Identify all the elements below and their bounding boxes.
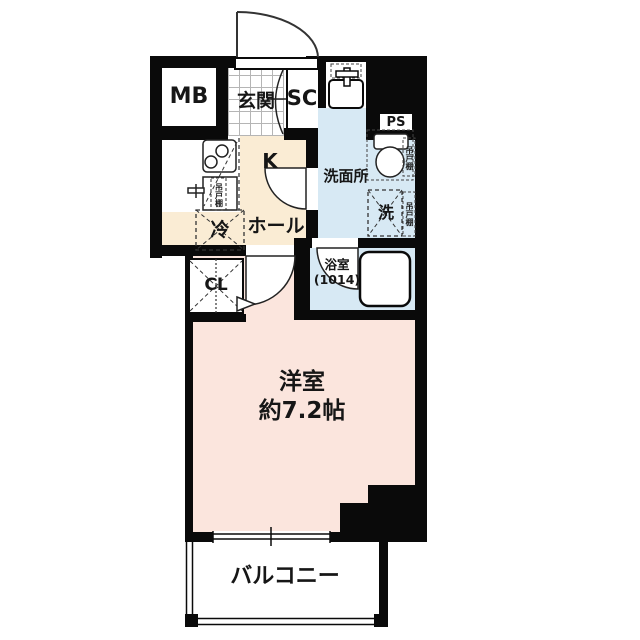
label-pipe-space: PS <box>380 114 412 130</box>
label-kitchen: K <box>252 148 288 174</box>
label-fridge: 冷 <box>206 216 234 244</box>
label-closet: CL <box>198 272 234 298</box>
label-balcony: バルコニー <box>228 563 342 591</box>
label-washroom: 洗面所 <box>314 166 378 186</box>
plan-linework <box>0 0 640 640</box>
label-washer: 洗 <box>374 202 398 224</box>
label-bathroom-size: (1014) <box>312 273 362 288</box>
label-cupboard-washer: 吊戸棚 <box>403 194 415 234</box>
label-shoe-closet: SC <box>286 84 318 112</box>
label-bathroom-name: 浴室 <box>314 258 360 273</box>
label-main-room-size: 約7.2帖 <box>252 397 352 425</box>
label-main-room-name: 洋室 <box>265 368 339 396</box>
label-meter-box: MB <box>162 82 216 112</box>
label-cupboard-kitchen: 吊戸棚 <box>211 180 226 209</box>
label-cupboard-toilet: 吊戸棚 <box>403 140 415 176</box>
label-entrance: 玄関 <box>228 88 284 114</box>
floor-plan: MB 玄関 SC PS K ホール 冷 CL 洗面所 洗 吊戸棚 吊戸棚 吊戸棚… <box>0 0 640 640</box>
label-hall: ホール <box>242 214 310 238</box>
